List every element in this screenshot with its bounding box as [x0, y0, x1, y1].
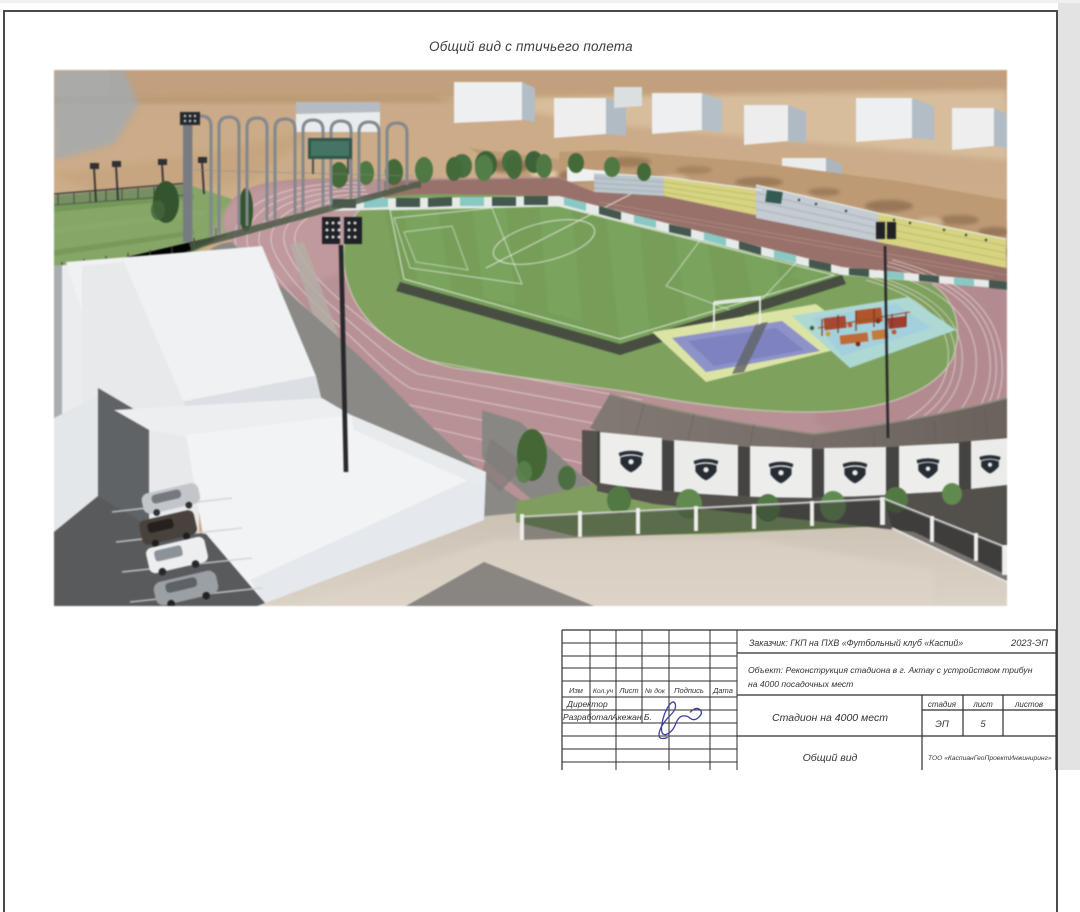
svg-text:Директор: Директор [566, 699, 608, 709]
svg-text:стадия: стадия [928, 700, 957, 709]
svg-text:Стадион на 4000 мест: Стадион на 4000 мест [772, 712, 888, 724]
svg-text:Акежан Б.: Акежан Б. [611, 712, 652, 722]
svg-text:ТОО «КаспианГеоПроектИнжинирин: ТОО «КаспианГеоПроектИнжиниринг» [928, 755, 1052, 762]
svg-text:Заказчик: ГКП на ПХВ «Футбольн: Заказчик: ГКП на ПХВ «Футбольный клуб «К… [749, 638, 963, 648]
svg-text:Объект: Реконструкция стадиона: Объект: Реконструкция стадиона в г. Акта… [748, 665, 1033, 675]
svg-text:Изм: Изм [569, 686, 583, 695]
svg-text:Дата: Дата [712, 686, 733, 695]
svg-text:5: 5 [980, 719, 986, 730]
svg-text:Кол.уч: Кол.уч [593, 688, 614, 695]
svg-text:Разработал: Разработал [563, 712, 613, 722]
svg-text:лист: лист [972, 700, 993, 709]
svg-text:Лист: Лист [618, 686, 638, 695]
svg-text:Подпись: Подпись [674, 686, 704, 695]
svg-text:листов: листов [1014, 700, 1043, 709]
svg-text:№ док: № док [645, 687, 666, 695]
svg-text:2023-ЭП: 2023-ЭП [1010, 638, 1048, 648]
svg-text:ЭП: ЭП [935, 719, 949, 730]
svg-text:Общий вид: Общий вид [803, 752, 858, 764]
svg-text:на 4000 посадочных мест: на 4000 посадочных мест [748, 679, 853, 689]
